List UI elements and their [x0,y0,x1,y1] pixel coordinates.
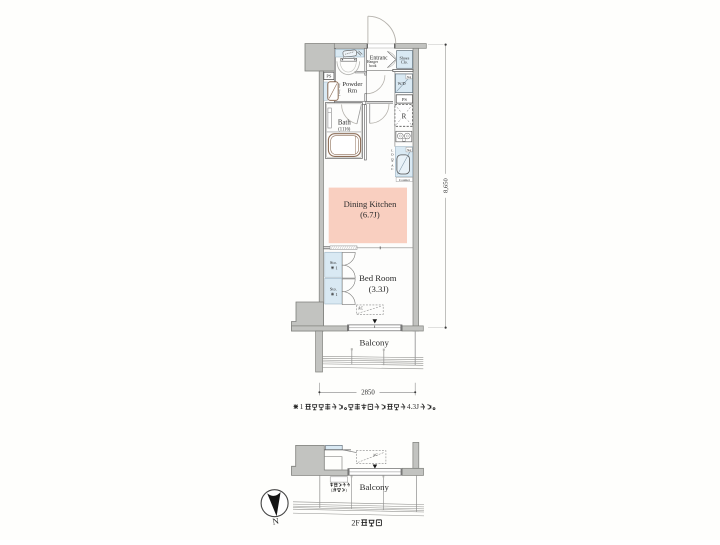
svg-text:2850: 2850 [361,390,375,397]
svg-text:(3.3J): (3.3J) [369,284,389,294]
svg-text:Dining Kitchen: Dining Kitchen [344,199,397,209]
svg-text:Sto.: Sto. [330,286,337,291]
svg-text:8,650: 8,650 [442,177,449,193]
svg-text:2F: 2F [351,518,360,527]
svg-text:Balcony: Balcony [360,482,390,492]
svg-text:3kg: 3kg [407,75,412,79]
svg-text:Clo.: Clo. [401,60,408,65]
svg-text:AC: AC [358,307,364,311]
svg-text:3kg: 3kg [407,148,412,152]
svg-text:4.3J: 4.3J [407,402,419,411]
svg-text:hook: hook [369,64,377,68]
svg-text:Counter: Counter [399,178,411,182]
svg-text:W/D: W/D [398,81,406,86]
svg-text:Bath: Bath [338,120,351,127]
svg-text:1: 1 [300,402,304,411]
svg-text:PS: PS [326,74,332,79]
svg-text:1: 1 [335,292,337,297]
svg-text:Rm: Rm [348,88,358,95]
svg-text:(6.7J): (6.7J) [360,209,380,219]
svg-text:Bed Room: Bed Room [359,273,397,283]
svg-text:Balcony: Balcony [360,337,390,347]
svg-text:1: 1 [335,265,337,270]
svg-text:Sto.: Sto. [330,260,337,265]
svg-text:PS: PS [402,97,408,102]
svg-text:R: R [402,112,407,120]
